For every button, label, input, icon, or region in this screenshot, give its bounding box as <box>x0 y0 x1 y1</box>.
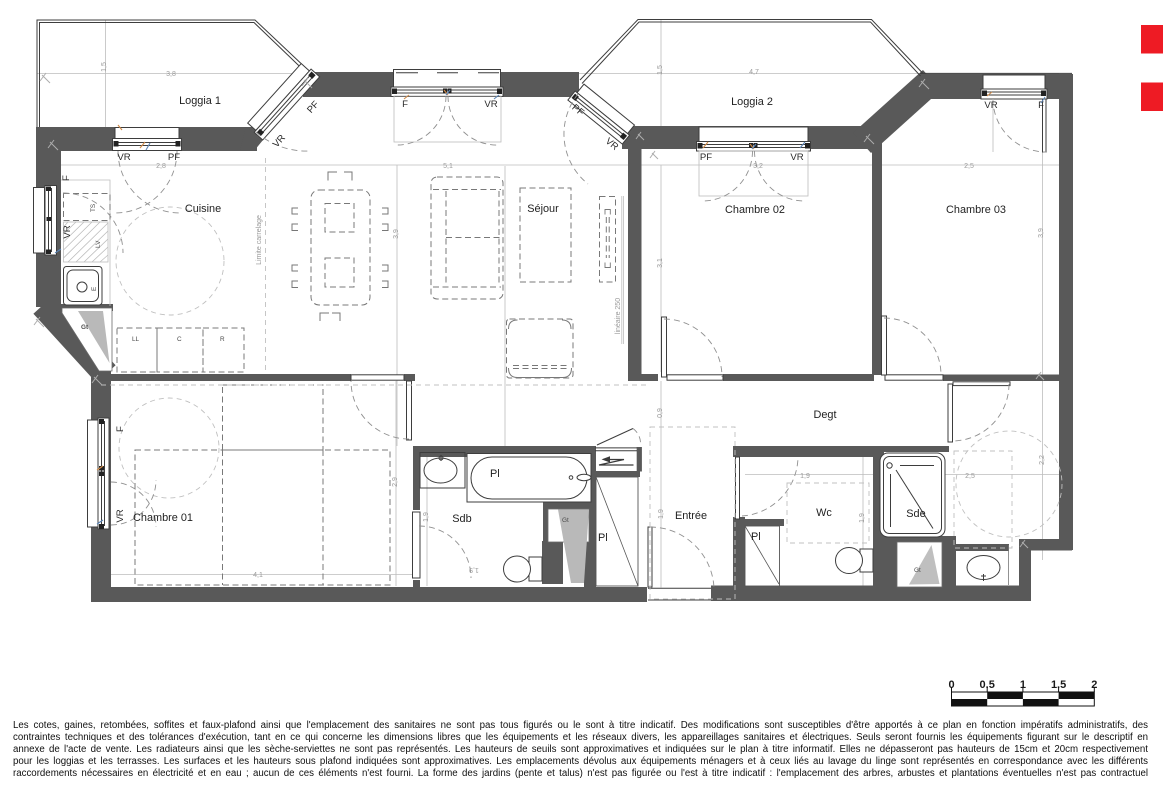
svg-text:0,9: 0,9 <box>657 408 664 418</box>
svg-text:3,2: 3,2 <box>753 163 763 170</box>
svg-text:3,9: 3,9 <box>1038 228 1045 238</box>
svg-text:2,5: 2,5 <box>965 473 975 480</box>
svg-text:Chambre 02: Chambre 02 <box>725 204 785 216</box>
svg-text:Gt: Gt <box>914 567 921 574</box>
svg-text:C: C <box>177 336 182 343</box>
svg-text:PF: PF <box>700 152 712 163</box>
svg-text:LV: LV <box>95 240 102 248</box>
svg-text:2,2: 2,2 <box>1039 455 1046 465</box>
svg-text:2,9: 2,9 <box>392 477 399 487</box>
svg-text:2,8: 2,8 <box>156 163 166 170</box>
svg-text:TS: TS <box>90 204 97 212</box>
svg-text:VR: VR <box>271 133 288 150</box>
svg-text:Cuisine: Cuisine <box>185 203 221 215</box>
svg-text:4,7: 4,7 <box>749 69 759 76</box>
svg-text:5,1: 5,1 <box>443 163 453 170</box>
svg-text:R: R <box>220 336 225 343</box>
svg-text:linéaire 250: linéaire 250 <box>615 298 622 334</box>
svg-text:PF: PF <box>305 99 321 116</box>
svg-text:VR: VR <box>484 99 497 110</box>
svg-text:4,1: 4,1 <box>253 572 263 579</box>
svg-text:Limite carrelage: Limite carrelage <box>256 215 263 265</box>
svg-text:Chambre 01: Chambre 01 <box>133 512 193 524</box>
svg-text:1,5: 1,5 <box>657 65 664 75</box>
svg-text:Pl: Pl <box>490 468 500 480</box>
svg-text:Loggia 2: Loggia 2 <box>731 96 773 108</box>
svg-text:Sdb: Sdb <box>452 513 471 525</box>
svg-text:VR: VR <box>790 152 803 163</box>
svg-text:2,5: 2,5 <box>964 163 974 170</box>
svg-text:1,9: 1,9 <box>423 512 430 522</box>
svg-text:Pl: Pl <box>751 531 761 543</box>
svg-text:F: F <box>115 426 126 432</box>
svg-text:Gt: Gt <box>81 324 89 331</box>
svg-text:Degt: Degt <box>813 409 836 421</box>
svg-text:1,5: 1,5 <box>101 62 108 72</box>
svg-text:Gt: Gt <box>562 517 569 524</box>
svg-text:Loggia 1: Loggia 1 <box>179 95 221 107</box>
svg-text:LL: LL <box>132 336 140 343</box>
svg-text:PF: PF <box>168 152 180 163</box>
svg-text:Sde: Sde <box>906 508 925 520</box>
svg-text:1,9: 1,9 <box>469 566 479 573</box>
svg-text:3,8: 3,8 <box>166 71 176 78</box>
svg-text:Wc: Wc <box>816 507 832 519</box>
svg-text:VR: VR <box>984 100 997 111</box>
svg-text:1,9: 1,9 <box>658 509 665 519</box>
svg-text:F: F <box>1038 100 1044 111</box>
svg-text:Chambre 03: Chambre 03 <box>946 204 1006 216</box>
svg-text:F: F <box>402 99 408 110</box>
svg-text:1,9: 1,9 <box>800 473 810 480</box>
svg-text:F: F <box>61 175 72 181</box>
svg-text:VR: VR <box>62 225 73 238</box>
svg-text:VR: VR <box>117 152 130 163</box>
svg-text:VR: VR <box>115 509 126 522</box>
svg-text:Entrée: Entrée <box>675 510 707 522</box>
svg-text:Pl: Pl <box>598 532 608 544</box>
svg-text:3,1: 3,1 <box>657 258 664 268</box>
svg-text:1,9: 1,9 <box>859 513 866 523</box>
svg-text:Séjour: Séjour <box>527 203 559 215</box>
svg-text:E: E <box>91 287 98 291</box>
svg-text:3,9: 3,9 <box>393 229 400 239</box>
